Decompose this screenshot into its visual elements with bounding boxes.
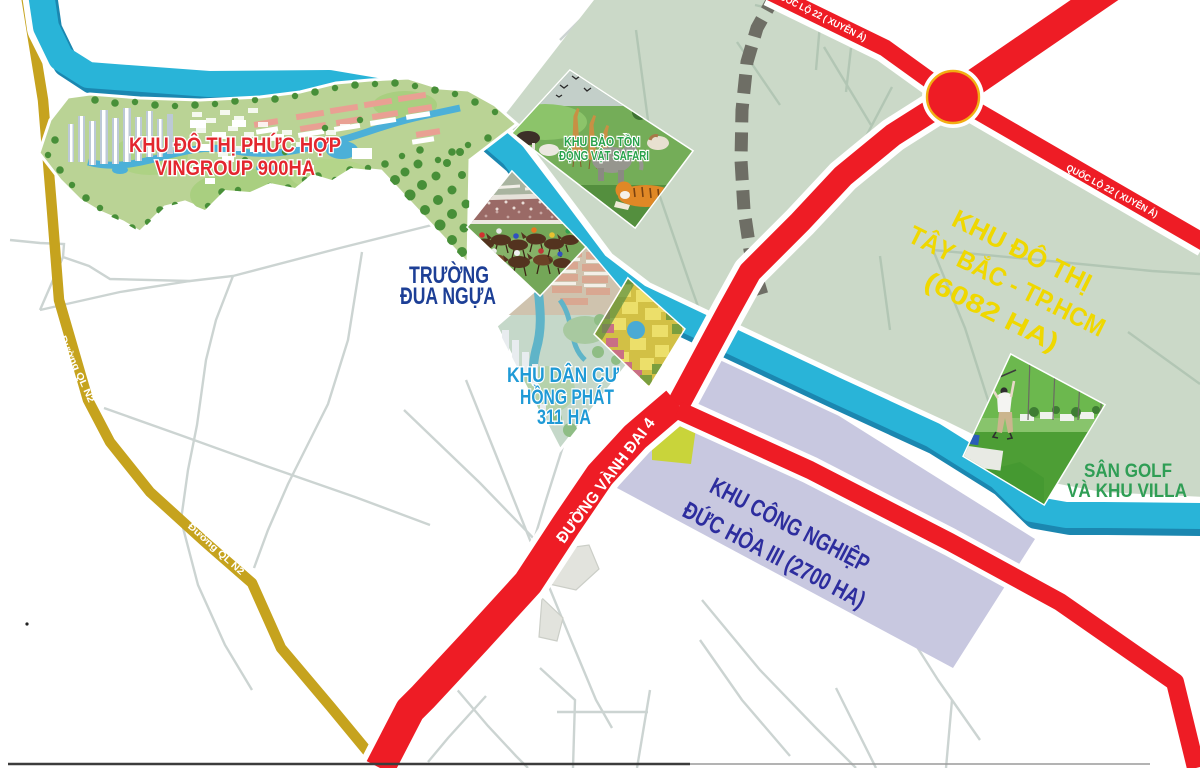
- svg-text:SÂN GOLF: SÂN GOLF: [1084, 460, 1172, 482]
- svg-text:311 HA: 311 HA: [537, 406, 591, 429]
- svg-text:ĐỘNG VẬT SAFARI: ĐỘNG VẬT SAFARI: [559, 148, 649, 163]
- svg-text:ĐUA NGỰA: ĐUA NGỰA: [400, 283, 496, 310]
- svg-text:KHU DÂN CƯ: KHU DÂN CƯ: [507, 363, 619, 387]
- svg-text:KHU ĐÔ THỊ PHỨC HỢP: KHU ĐÔ THỊ PHỨC HỢP: [129, 133, 341, 157]
- svg-text:KHU BẢO TỒN: KHU BẢO TỒN: [564, 134, 640, 149]
- svg-text:VINGROUP 900HA: VINGROUP 900HA: [155, 157, 315, 180]
- svg-text:VÀ KHU VILLA: VÀ KHU VILLA: [1067, 480, 1187, 502]
